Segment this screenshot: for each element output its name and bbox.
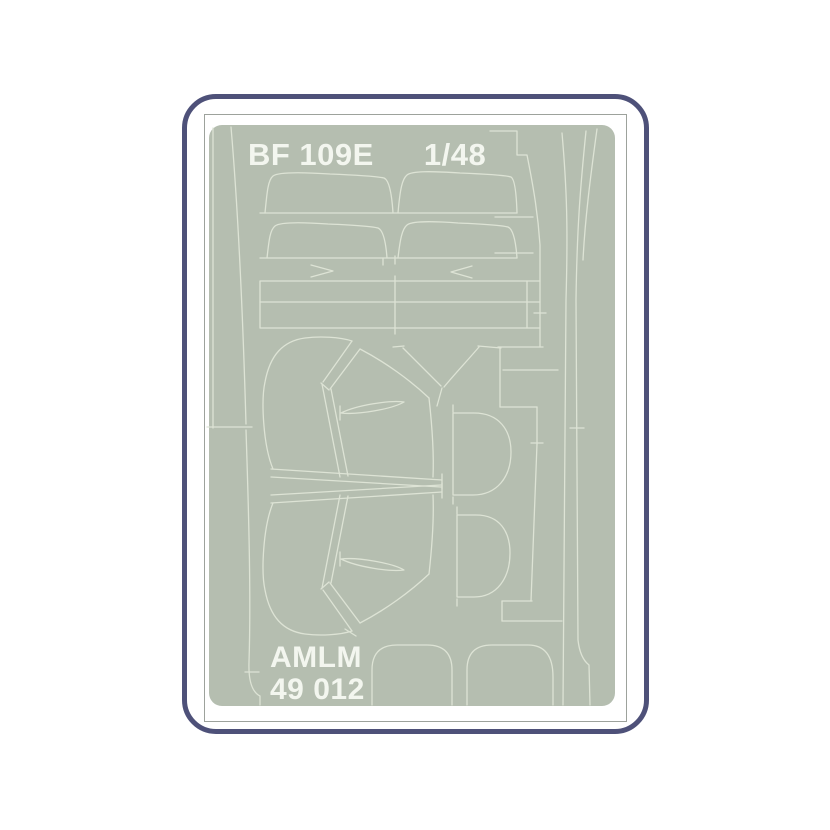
brand-name-label: AMLM (270, 642, 365, 674)
title-spacer (374, 139, 424, 170)
scale-label: 1/48 (424, 139, 486, 170)
brand-block: AMLM 49 012 (270, 642, 365, 706)
model-name-label: BF 109E (248, 139, 374, 170)
mask-sheet (209, 125, 615, 706)
product-photo: { "product_label": { "model": "BF 109E",… (0, 0, 830, 830)
product-code-label: 49 012 (270, 674, 365, 706)
sheet-title: BF 109E 1/48 (248, 139, 486, 170)
